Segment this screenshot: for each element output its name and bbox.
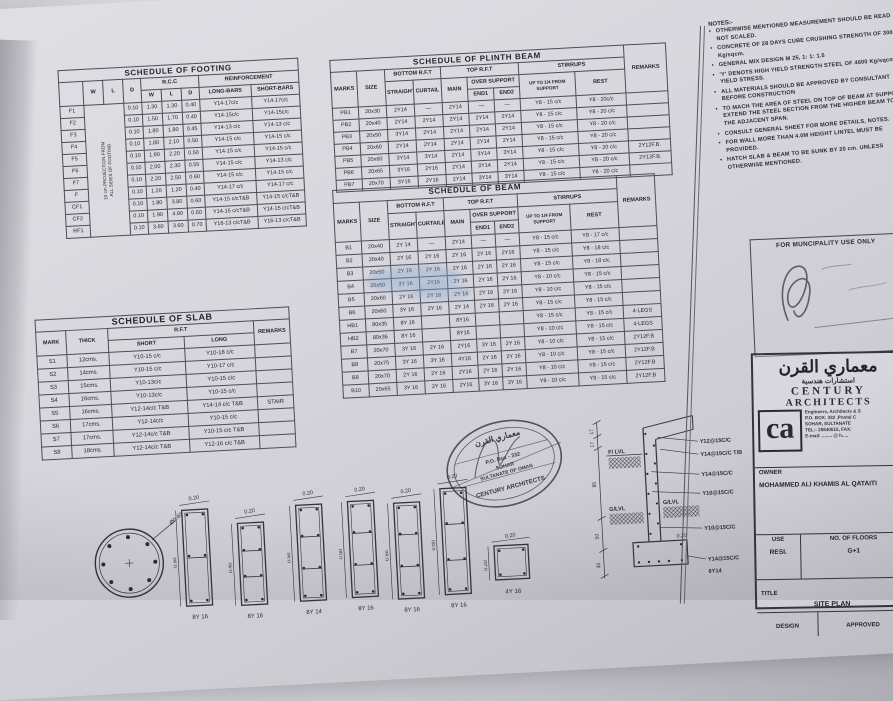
floors-label: NO. OF FLOORS <box>801 535 893 543</box>
height-dim: 0.20 <box>483 560 490 571</box>
approved-label: APPROVED <box>846 622 880 629</box>
owner-name: MOHAMMED ALI KHAMIS AL QATAITI <box>759 480 893 491</box>
use-value: RESI. <box>756 549 800 558</box>
bars-label: 4Y 16 <box>505 588 522 596</box>
height-dim: 0.50 <box>286 552 293 563</box>
owner-section: OWNER MOHAMMED ALI KHAMIS AL QATAITI <box>755 466 893 536</box>
width-dim: 0.20 <box>447 473 458 481</box>
wall-footing-detail: 17 17 85 50 30 F/ LVL G/LVL G/LVL <box>586 408 767 589</box>
use-label: USE <box>756 537 800 544</box>
width-dim: 0.20 <box>244 508 255 516</box>
column-section: 0.20 0.60 8Y 16 <box>428 467 481 611</box>
rebar-label: Y14@15C/C <box>701 470 733 478</box>
bars-label: 8Y 16 <box>192 614 209 621</box>
general-notes: NOTES:- OTHERWISE MENTIONED MEASUREMENT … <box>708 5 893 174</box>
notes-list: OTHERWISE MENTIONED MEASUREMENT SHOULD B… <box>709 12 893 172</box>
height-dim: 0.40 <box>227 562 234 573</box>
bars-label: 8Y 16 <box>451 603 468 610</box>
schedule-of-footing-table: SCHEDULE OF FOOTINGWLDR.C.CREINFORCEMENT… <box>57 58 307 239</box>
bars-label: 8Y 16 <box>247 613 264 620</box>
design-label: DESIGN <box>776 624 799 630</box>
g-level-label-right: G/LVL <box>663 499 680 506</box>
ground-hatch <box>608 456 641 469</box>
title-block: معماري القرن استشارات هندسية CENTURY ARC… <box>751 351 893 610</box>
municipality-box: FOR MUNCIPALITY USE ONLY <box>749 233 893 358</box>
rebar-label: 6Y14 <box>708 568 722 575</box>
height-dim: 0.50 <box>338 549 345 560</box>
dim-17: 17 <box>589 429 595 435</box>
column-section: 0.20 0.50 8Y 16 <box>335 480 388 614</box>
firm-address: Engineers, Architects & SP.O. BOX: 332 ,… <box>802 407 893 451</box>
dim-50: 50 <box>594 533 600 539</box>
firm-identity: معماري القرن استشارات هندسية CENTURY ARC… <box>753 353 893 469</box>
floors-value: G+1 <box>801 547 893 557</box>
dim-30: 30 <box>596 562 602 568</box>
column-section: 0.20 0.50 8Y 16 <box>170 489 223 623</box>
height-dim: 0.60 <box>431 540 438 551</box>
width-dim: 0.20 <box>505 532 516 540</box>
rebar-label: Y14@15C/C <box>708 555 740 563</box>
bars-label: 8Y 14 <box>306 609 323 616</box>
height-dim: 0.50 <box>384 550 391 561</box>
ca-logo: ca <box>758 409 803 452</box>
bars-label: 8Y 16 <box>404 607 421 614</box>
municipality-signature <box>751 244 893 342</box>
design-approved-section: DESIGN APPROVED <box>757 611 893 638</box>
rebar-label: Y12@15C/C <box>700 437 732 445</box>
dim-17b: 17 <box>590 442 596 448</box>
small-column-section: 0.20 0.20 4Y 16 <box>482 530 542 605</box>
sheet-title-section: TITLE SITE PLAN <box>757 578 893 614</box>
column-section: 0.20 0.50 8Y 16 <box>382 481 435 615</box>
width-dim: 0.20 <box>354 486 365 494</box>
dim-85: 85 <box>592 482 598 488</box>
screenshot-root: { "footing_table": { "widths":[24,20,20,… <box>0 0 893 600</box>
column-section: 0.20 0.40 8Y 16 <box>225 502 277 622</box>
sheet-title-value: SITE PLAN <box>761 600 893 609</box>
rebar-label: Y10@15C/C <box>704 524 736 532</box>
width-dim: 0.20 <box>302 490 313 498</box>
title-label: TITLE <box>761 591 778 597</box>
schedule-of-slab-table: SCHEDULE OF SLABMARKTHICKR.F.TREMARKSSHO… <box>34 306 296 460</box>
schedule-of-beam-table: SCHEDULE OF BEAMREMARKSMARKSSIZEBOTTOM R… <box>332 173 666 399</box>
g-level-label-left: G/LVL <box>609 506 626 513</box>
width-dim: 0.20 <box>188 495 199 503</box>
ground-hatch <box>663 505 700 518</box>
width-dim: 0.20 <box>400 488 411 496</box>
column-section: 0.20 0.50 8Y 14 <box>284 484 337 618</box>
use-floors-section: USE RESI. NO. OF FLOORS G+1 <box>756 533 893 581</box>
schedule-of-plinth-beam-table: SCHEDULE OF PLINTH BEAMREMARKSMARKSSIZEB… <box>329 42 673 192</box>
rebar-label: Y14@15C/C T/B <box>700 450 742 458</box>
ground-hatch <box>609 512 644 525</box>
bars-label: 8Y 16 <box>358 605 375 612</box>
height-dim: 0.50 <box>172 557 179 568</box>
rebar-label: Y10@15C/C <box>702 489 734 497</box>
owner-label: OWNER <box>759 468 893 476</box>
firm-name-arabic: معماري القرن <box>753 356 893 378</box>
